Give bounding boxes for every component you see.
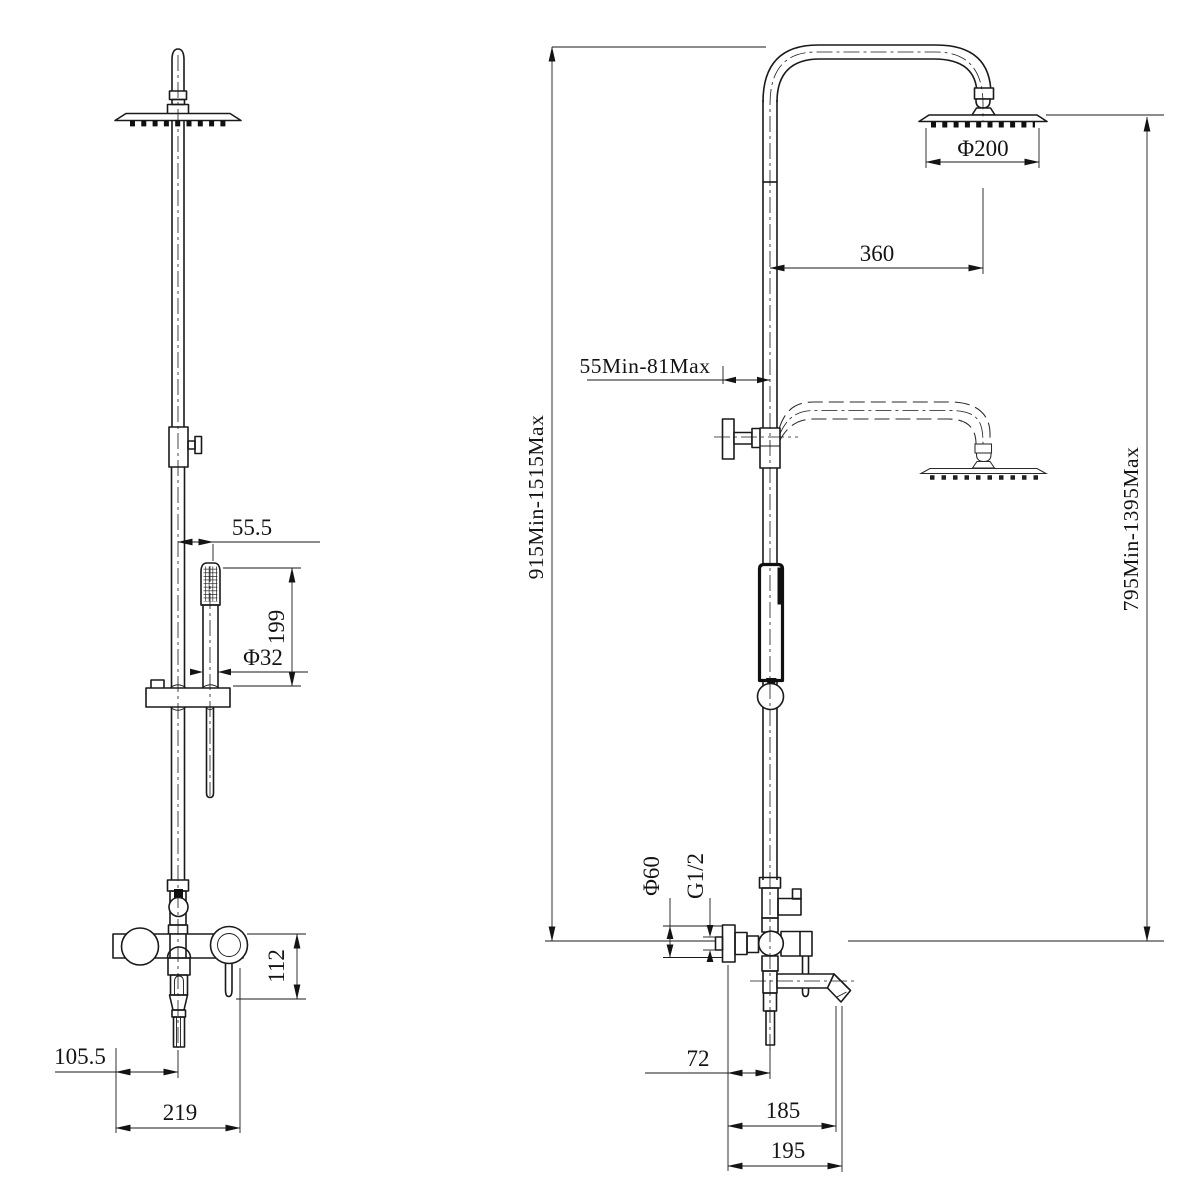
dim-label: Φ200 [957, 136, 1008, 161]
side-mixer [716, 878, 851, 1046]
dim-hand-shower-offset: 55.5 [178, 515, 320, 561]
dim-connection-thread: G1/2 [683, 853, 718, 962]
handle-base-side [781, 932, 812, 957]
side-view: Φ200 360 55Min-81Max 915Min-1515Max 795M… [524, 45, 1164, 1172]
ghost-lowered-arm [779, 402, 1046, 478]
spout-front [171, 975, 188, 995]
holder-knob-side [758, 684, 784, 710]
dim-spout-reach: 185 [728, 1006, 836, 1132]
dim-label: Φ32 [243, 645, 283, 670]
dim-label: 105.5 [54, 1044, 106, 1069]
dim-label: 55.5 [232, 515, 272, 540]
dim-label: 795Min-1395Max [1119, 447, 1143, 612]
technical-drawing: 55.5 199 Φ32 112 105. [0, 0, 1200, 1200]
dim-label: Φ60 [639, 856, 664, 896]
dim-label: 195 [771, 1138, 806, 1163]
front-hand-shower [201, 563, 220, 798]
side-hand-shower [758, 565, 784, 710]
ball-joint-side [759, 931, 784, 956]
dim-label: G1/2 [683, 853, 708, 899]
side-riser-gooseneck [763, 45, 995, 880]
dim-label: 915Min-1515Max [524, 415, 548, 580]
dim-spout-offset: 105.5 [54, 1044, 178, 1133]
front-mixer [113, 880, 248, 1047]
front-outlet-wand [174, 1017, 185, 1047]
head-connector-nut [975, 88, 994, 99]
wall-bracket-flange [723, 419, 735, 459]
front-clamp-knob [188, 441, 195, 449]
hand-shower-spray-face [204, 567, 218, 602]
dim-label: 219 [163, 1100, 198, 1125]
dim-label: 55Min-81Max [580, 354, 711, 378]
mixer-right-cap [211, 927, 248, 964]
dim-arm-reach: 360 [770, 188, 983, 274]
dim-label: 72 [687, 1046, 710, 1071]
drawing-sheet: 55.5 199 Φ32 112 105. [0, 0, 1200, 1200]
diverter-knob-front [169, 898, 188, 917]
side-shower-head [919, 115, 1047, 125]
front-view: 55.5 199 Φ32 112 105. [54, 49, 320, 1133]
inlet-stub [716, 937, 723, 950]
dim-head-height-range: 795Min-1395Max [1046, 115, 1164, 941]
dim-head-diameter: Φ200 [926, 128, 1039, 168]
dim-label: 112 [264, 949, 289, 983]
dim-hand-shower-diameter: Φ32 [190, 645, 308, 675]
front-riser-pipe [169, 121, 202, 881]
side-riser-centerline [770, 52, 983, 1050]
wall-bracket [723, 419, 781, 468]
dim-wall-bracket-range: 55Min-81Max [580, 354, 770, 384]
dim-riser-height-range: 915Min-1515Max [524, 47, 766, 941]
dim-outlet-offset: 72 [645, 965, 770, 1171]
dim-label: 185 [766, 1098, 801, 1123]
escutcheon-flange [723, 925, 736, 962]
dim-label: 199 [264, 610, 289, 645]
dim-label: 360 [860, 241, 895, 266]
mixer-left-cap [122, 928, 159, 965]
lever-handle-front [226, 963, 233, 997]
dim-spout-overall: 195 [728, 1006, 842, 1172]
diverter-side [778, 899, 801, 916]
